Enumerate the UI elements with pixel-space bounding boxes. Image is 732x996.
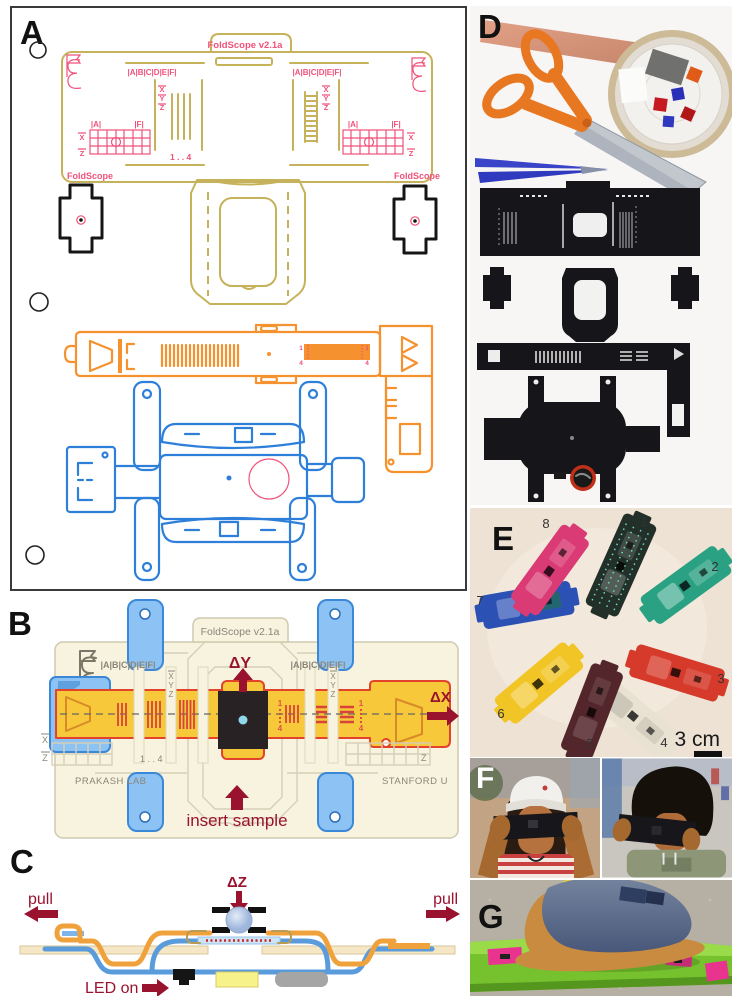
svg-text:X: X	[330, 672, 336, 681]
lens-dot	[239, 716, 248, 725]
panel-g-photo: G	[470, 880, 732, 996]
focus-flap-outline	[191, 180, 305, 304]
axis-z-label: Z	[409, 149, 414, 158]
pull-right-arrow-icon	[426, 906, 460, 922]
range-label: 1 . . 4	[140, 754, 163, 764]
svg-text:3: 3	[717, 671, 724, 686]
hand	[682, 828, 700, 852]
axis-y-label: Y	[159, 94, 164, 103]
ball-lens-icon	[226, 907, 252, 933]
svg-text:Z: Z	[169, 690, 174, 699]
version-title: FoldScope v2.1a	[208, 40, 284, 51]
svg-text:Z: Z	[331, 690, 336, 699]
svg-text:8: 8	[542, 516, 549, 531]
printed-marks	[67, 55, 426, 154]
panel-e-photo: 1 2 3 4 5 6 7 8 E 3 cm	[470, 508, 732, 757]
svg-text:X: X	[168, 672, 174, 681]
svg-text:Y: Y	[330, 681, 336, 690]
led-arrow-icon	[142, 979, 169, 996]
axis-x-label: X	[323, 85, 328, 94]
svg-text:Z: Z	[42, 753, 48, 763]
panel-e-label: E	[492, 520, 514, 557]
pull-left-arrow-icon	[24, 906, 58, 922]
panel-f-label: F	[476, 762, 494, 795]
panel-c-cross-section: C ΔZ pull pull	[0, 845, 468, 996]
svg-text:X: X	[42, 735, 48, 745]
svg-text:6: 6	[497, 706, 504, 721]
version-title: FoldScope v2.1a	[201, 626, 280, 638]
svg-text:5: 5	[586, 736, 593, 751]
svg-text:4: 4	[660, 735, 667, 750]
svg-text:2: 2	[711, 559, 718, 574]
panel-f-photo-left: F	[470, 758, 600, 878]
panel-a-drawing: A	[12, 8, 465, 589]
battery-pill	[275, 972, 328, 987]
tick-4: 4	[365, 360, 369, 367]
grid-a-label: |A|	[348, 120, 358, 129]
axis-y-label: Y	[323, 94, 328, 103]
panel-f-photos: F	[470, 758, 732, 878]
axis-x-label: X	[408, 133, 413, 142]
stage-sheet-outline	[62, 34, 432, 182]
grid-a-label: |A|	[91, 120, 101, 129]
brand-label-left: FoldScope	[67, 171, 113, 181]
svg-text:Y: Y	[168, 681, 174, 690]
axis-z-label: Z	[324, 103, 329, 112]
panel-c-label: C	[10, 845, 34, 880]
insert-sample-annotation: insert sample	[186, 811, 287, 830]
delta-y-annotation: ΔY	[229, 655, 252, 672]
range-label: 1 . . 4	[170, 152, 192, 162]
diffuser	[216, 972, 258, 987]
scale-label: 3 cm	[674, 728, 720, 751]
pull-right-annotation: pull	[433, 891, 458, 908]
registration-holes	[26, 42, 48, 564]
svg-text:Z: Z	[421, 753, 427, 763]
university-credit: STANFORD U	[382, 776, 448, 787]
tick-4: 4	[359, 724, 364, 733]
tape-roll	[608, 30, 732, 158]
panel-d-photo: D	[470, 6, 732, 505]
panel-f-photo-right	[602, 758, 732, 878]
black-stage-sheet	[480, 181, 700, 256]
tick-1: 1	[299, 345, 303, 352]
sample-stage	[218, 681, 268, 759]
stage-row-label-left: |A|B|C|D|E|F|	[100, 660, 155, 670]
lens-mount-parts	[60, 185, 436, 253]
led-icon	[173, 969, 195, 985]
stage-row-label-right: |A|B|C|D|E|F|	[293, 68, 342, 77]
grid-f-label: |F|	[391, 120, 400, 129]
axis-x-label: X	[79, 133, 84, 142]
svg-text:1: 1	[640, 514, 647, 529]
brand-label-right: FoldScope	[394, 171, 440, 181]
delta-x-annotation: ΔX	[430, 689, 451, 706]
tick-4: 4	[278, 724, 283, 733]
base-sheet-outline	[67, 382, 364, 580]
panel-a-cut-pattern: A	[10, 6, 467, 591]
panel-d-label: D	[478, 8, 502, 45]
scale-bar	[694, 751, 722, 757]
svg-text:7: 7	[476, 593, 483, 608]
axis-x-label: X	[159, 85, 164, 94]
ball-lens-mount	[212, 907, 266, 933]
panel-g-label: G	[478, 898, 504, 935]
axis-z-label: Z	[80, 149, 85, 158]
tick-1: 1	[359, 699, 364, 708]
foldscope-figure: A	[0, 0, 732, 996]
lab-logo-icon	[412, 58, 426, 91]
stage-row-label-left: |A|B|C|D|E|F|	[128, 68, 177, 77]
grid-f-label: |F|	[134, 120, 143, 129]
tick-1: 1	[278, 699, 283, 708]
tick-1: 1	[365, 345, 369, 352]
stage-row-label-right: |A|B|C|D|E|F|	[290, 660, 345, 670]
lab-logo-icon	[67, 55, 81, 88]
tick-4: 4	[299, 360, 303, 367]
panel-b-label: B	[8, 605, 32, 642]
delta-z-annotation: ΔZ	[227, 874, 247, 891]
panel-b-assembled-view: B	[0, 595, 468, 845]
pull-left-annotation: pull	[28, 891, 53, 908]
slider-strip-outline	[65, 325, 432, 472]
axis-z-label: Z	[160, 103, 165, 112]
led-on-annotation: LED on	[85, 980, 138, 996]
lab-credit: PRAKASH LAB	[75, 776, 147, 787]
